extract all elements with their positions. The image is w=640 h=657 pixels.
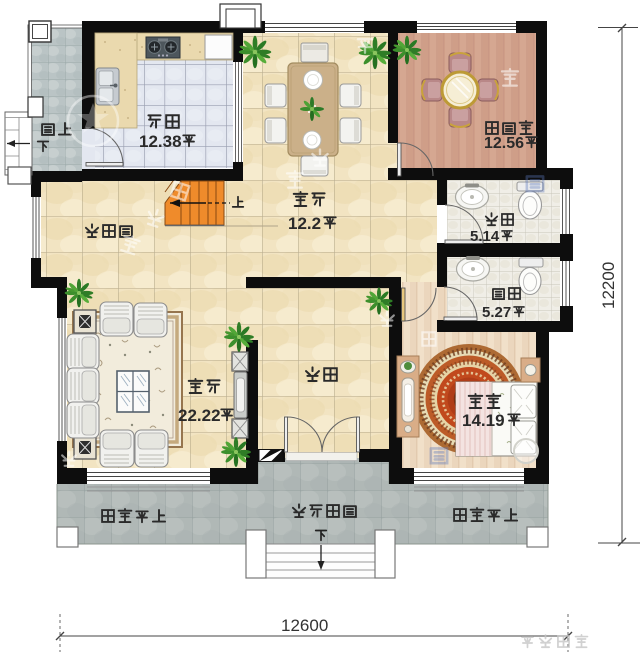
svg-text:12.2: 12.2 (288, 214, 321, 233)
svg-text:12200: 12200 (599, 262, 618, 309)
svg-text:5.27: 5.27 (482, 304, 511, 321)
svg-text:12.38: 12.38 (139, 132, 182, 151)
svg-text:12600: 12600 (281, 616, 328, 635)
svg-text:22.22: 22.22 (178, 406, 221, 425)
svg-text:5.14: 5.14 (470, 228, 500, 245)
svg-text:14.19: 14.19 (462, 411, 505, 430)
svg-text:12.56: 12.56 (484, 135, 524, 152)
